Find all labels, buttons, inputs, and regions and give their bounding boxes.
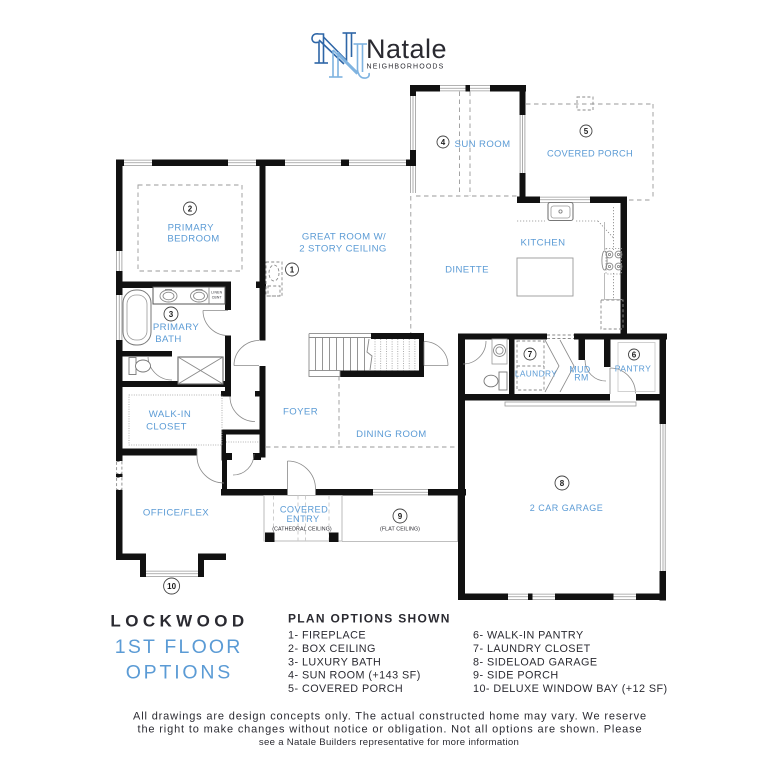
svg-text:COVERED PORCH: COVERED PORCH bbox=[547, 149, 633, 159]
svg-text:2 CAR GARAGE: 2 CAR GARAGE bbox=[530, 503, 604, 513]
svg-text:1: 1 bbox=[290, 265, 295, 274]
svg-text:Natale: Natale bbox=[366, 34, 447, 64]
svg-text:FOYER: FOYER bbox=[283, 407, 318, 418]
svg-text:7: 7 bbox=[528, 350, 533, 359]
svg-text:BEDROOM: BEDROOM bbox=[167, 234, 219, 245]
svg-text:10: 10 bbox=[167, 582, 176, 591]
svg-text:RM: RM bbox=[574, 373, 588, 383]
svg-text:NEIGHBORHOODS: NEIGHBORHOODS bbox=[367, 64, 445, 71]
svg-text:LAUNDRY: LAUNDRY bbox=[515, 369, 557, 379]
svg-text:CBNT: CBNT bbox=[212, 296, 222, 300]
svg-text:PRIMARY: PRIMARY bbox=[168, 223, 215, 234]
svg-text:LOCKWOOD: LOCKWOOD bbox=[110, 612, 248, 631]
svg-text:DINING ROOM: DINING ROOM bbox=[356, 429, 427, 440]
svg-text:OFFICE/FLEX: OFFICE/FLEX bbox=[143, 508, 209, 519]
svg-text:(CATHEDRAL CEILING): (CATHEDRAL CEILING) bbox=[272, 527, 332, 533]
svg-text:8: 8 bbox=[560, 479, 565, 488]
svg-text:9: 9 bbox=[398, 512, 403, 521]
svg-text:2: 2 bbox=[188, 204, 193, 213]
svg-text:KITCHEN: KITCHEN bbox=[521, 238, 566, 249]
svg-text:10- DELUXE WINDOW BAY (+12 SF): 10- DELUXE WINDOW BAY (+12 SF) bbox=[473, 683, 668, 695]
svg-text:PRIMARY: PRIMARY bbox=[153, 322, 200, 333]
svg-text:1ST FLOOR: 1ST FLOOR bbox=[115, 636, 243, 658]
svg-text:WALK-IN: WALK-IN bbox=[149, 409, 191, 420]
svg-text:7- LAUNDRY CLOSET: 7- LAUNDRY CLOSET bbox=[473, 643, 591, 655]
svg-text:PANTRY: PANTRY bbox=[615, 364, 651, 374]
svg-text:5: 5 bbox=[584, 127, 589, 136]
svg-text:5- COVERED PORCH: 5- COVERED PORCH bbox=[288, 683, 403, 695]
svg-text:2 STORY CEILING: 2 STORY CEILING bbox=[299, 244, 387, 255]
svg-text:6- WALK-IN PANTRY: 6- WALK-IN PANTRY bbox=[473, 630, 584, 642]
svg-text:3: 3 bbox=[169, 310, 174, 319]
svg-text:PLAN OPTIONS SHOWN: PLAN OPTIONS SHOWN bbox=[288, 612, 451, 626]
svg-text:CLOSET: CLOSET bbox=[146, 422, 187, 433]
svg-text:see a Natale Builders represen: see a Natale Builders representative for… bbox=[259, 737, 519, 748]
svg-text:4- SUN ROOM (+143 SF): 4- SUN ROOM (+143 SF) bbox=[288, 670, 421, 682]
svg-text:8- SIDELOAD GARAGE: 8- SIDELOAD GARAGE bbox=[473, 656, 598, 668]
svg-text:2- BOX CEILING: 2- BOX CEILING bbox=[288, 643, 376, 655]
svg-text:GREAT ROOM W/: GREAT ROOM W/ bbox=[302, 232, 386, 243]
svg-text:the right to make changes with: the right to make changes without notice… bbox=[138, 724, 643, 736]
svg-text:DINETTE: DINETTE bbox=[445, 265, 489, 276]
svg-text:SUN ROOM: SUN ROOM bbox=[455, 139, 511, 150]
svg-text:4: 4 bbox=[441, 138, 446, 147]
svg-text:9- SIDE PORCH: 9- SIDE PORCH bbox=[473, 670, 559, 682]
svg-text:All drawings are design concep: All drawings are design concepts only. T… bbox=[133, 711, 647, 723]
svg-text:LINEN: LINEN bbox=[211, 291, 222, 295]
svg-text:3- LUXURY BATH: 3- LUXURY BATH bbox=[288, 656, 381, 668]
svg-text:(FLAT CEILING): (FLAT CEILING) bbox=[380, 527, 420, 533]
svg-text:6: 6 bbox=[632, 350, 637, 359]
svg-text:ENTRY: ENTRY bbox=[287, 514, 320, 524]
svg-text:BATH: BATH bbox=[155, 334, 181, 345]
svg-text:1- FIREPLACE: 1- FIREPLACE bbox=[288, 630, 366, 642]
svg-text:OPTIONS: OPTIONS bbox=[126, 662, 233, 684]
